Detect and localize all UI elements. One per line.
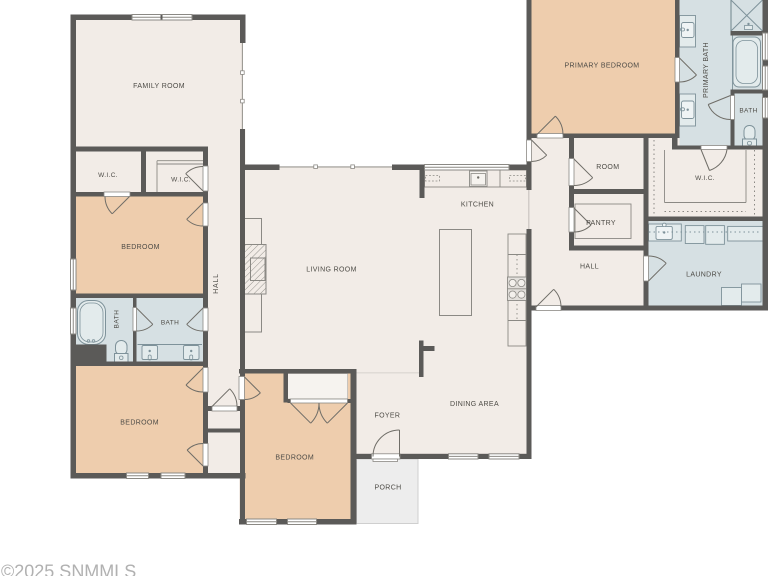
svg-text:KITCHEN: KITCHEN: [461, 202, 494, 209]
svg-text:ROOM: ROOM: [596, 164, 619, 171]
svg-text:FOYER: FOYER: [374, 413, 400, 420]
svg-text:BATH: BATH: [161, 320, 179, 327]
svg-text:HALL: HALL: [213, 273, 220, 294]
svg-text:HALL: HALL: [580, 264, 599, 271]
svg-text:BATH: BATH: [114, 310, 121, 329]
svg-text:DINING AREA: DINING AREA: [450, 401, 499, 408]
svg-text:BATH: BATH: [739, 108, 757, 115]
svg-text:LAUNDRY: LAUNDRY: [686, 271, 722, 278]
svg-text:FAMILY ROOM: FAMILY ROOM: [133, 83, 185, 90]
svg-text:W.I.C.: W.I.C.: [695, 175, 715, 182]
svg-text:PORCH: PORCH: [374, 485, 401, 492]
svg-text:BEDROOM: BEDROOM: [120, 419, 159, 426]
svg-text:BEDROOM: BEDROOM: [121, 244, 160, 251]
svg-text:LIVING ROOM: LIVING ROOM: [306, 267, 357, 274]
svg-text:W.I.C.: W.I.C.: [171, 177, 191, 184]
svg-text:PANTRY: PANTRY: [586, 220, 616, 227]
svg-text:W.I.C.: W.I.C.: [98, 172, 118, 179]
svg-text:BEDROOM: BEDROOM: [275, 455, 314, 462]
svg-text:PRIMARY BEDROOM: PRIMARY BEDROOM: [564, 62, 639, 69]
svg-text:PRIMARY BATH: PRIMARY BATH: [703, 42, 710, 98]
svg-text:©2025 SNMMLS: ©2025 SNMMLS: [1, 562, 136, 576]
